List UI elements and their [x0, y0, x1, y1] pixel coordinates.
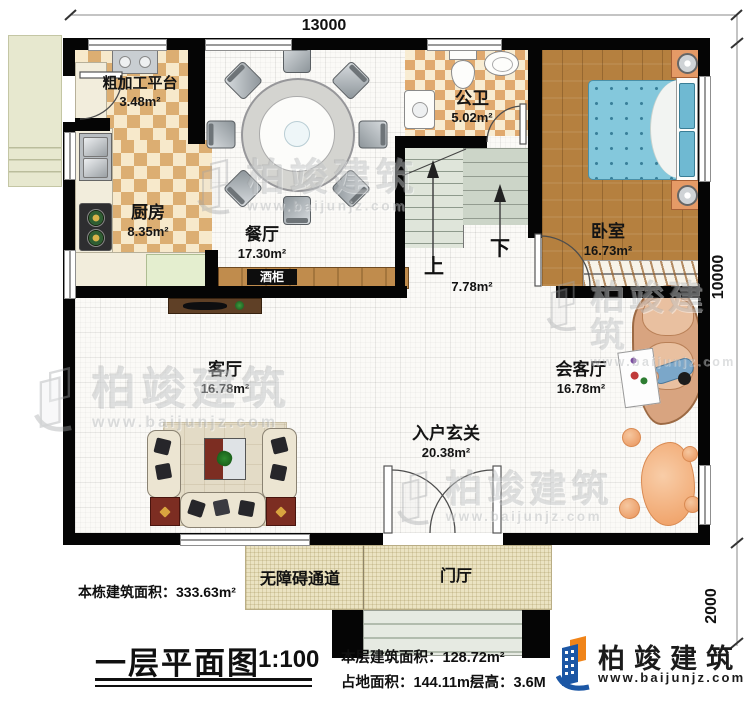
room-label-prep: 粗加工平台 3.48m² — [102, 72, 177, 109]
dining-chair — [283, 196, 311, 225]
window — [64, 132, 76, 180]
wall — [395, 136, 487, 148]
window — [64, 250, 76, 299]
window — [427, 39, 502, 51]
stair-landing — [463, 148, 528, 225]
rug-dot — [682, 446, 698, 462]
lamp — [677, 53, 698, 74]
plan-title: 一层平面图 — [95, 638, 260, 683]
stairs-up-label: 上 — [424, 250, 444, 279]
ramp-label: 无障碍通道 — [260, 565, 340, 589]
floor-plan-canvas: 酒柜 — [0, 0, 750, 701]
dining-chair — [207, 121, 236, 149]
wall — [205, 250, 218, 290]
window — [699, 76, 711, 182]
window — [205, 39, 292, 51]
rug-dot — [619, 498, 640, 519]
rug-dot — [622, 428, 641, 447]
window — [180, 534, 310, 546]
room-label-kitchen: 厨房 8.35m² — [127, 198, 168, 239]
room-label-living: 客厅 16.78m² — [201, 355, 249, 396]
coffee-table — [204, 438, 246, 480]
plan-scale: 1:100 — [258, 646, 319, 674]
pillow — [679, 131, 695, 177]
lamp — [677, 185, 698, 206]
stairs-area: 7.78m² — [451, 279, 492, 294]
brand-url: www.baijunjz.com — [598, 670, 745, 685]
washbasin — [404, 90, 435, 129]
title-underline — [95, 678, 312, 687]
reception-table — [617, 348, 660, 408]
wall — [188, 44, 205, 144]
plant — [215, 449, 234, 468]
room-label-reception: 会客厅 16.78m² — [556, 355, 607, 396]
room-label-foyer: 入户玄关 20.38m² — [412, 419, 480, 460]
dimension-height-main: 10000 — [710, 237, 728, 317]
sofa-left — [147, 430, 181, 498]
wall — [528, 38, 542, 238]
side-table — [266, 497, 296, 526]
bed-headboard — [676, 76, 698, 184]
floor-area: 本层建筑面积：128.72m² — [341, 646, 505, 667]
dining-table — [241, 78, 355, 192]
tv-cabinet — [168, 298, 262, 314]
pillow — [679, 83, 695, 129]
room-label-bedroom: 卧室 16.73m² — [584, 217, 632, 258]
land-area: 占地面积：144.11m² — [341, 671, 475, 692]
wall — [395, 148, 405, 290]
floor-height: 层高：3.6M — [470, 671, 546, 692]
porch-label: 门厅 — [440, 562, 472, 586]
tv — [183, 302, 227, 310]
plant — [235, 301, 244, 310]
kitchen-sink — [79, 133, 112, 181]
window — [699, 465, 711, 525]
stairs-down-label: 下 — [490, 232, 510, 261]
wine-cabinet-label: 酒柜 — [247, 269, 297, 285]
side-table — [150, 497, 180, 526]
room-label-bath: 公卫 5.02m² — [451, 84, 492, 125]
prep-sink — [112, 50, 158, 74]
window — [88, 39, 167, 51]
room-label-dining: 餐厅 17.30m² — [238, 220, 286, 261]
wall — [556, 286, 710, 298]
dimension-height-porch: 2000 — [703, 576, 721, 636]
sofa-right — [262, 428, 297, 500]
stair-treads — [405, 148, 464, 248]
bathroom-sink — [484, 51, 519, 76]
kitchen-stove — [79, 203, 112, 251]
wardrobe — [583, 260, 699, 288]
person-hair — [678, 372, 691, 385]
wall — [63, 286, 407, 298]
porch-pillar — [522, 610, 550, 658]
brand-logo-icon — [556, 634, 594, 694]
dimension-width: 13000 — [302, 17, 347, 35]
building-total-area: 本栋建筑面积：333.63m² — [78, 582, 236, 602]
dining-chair — [359, 121, 388, 149]
sofa-bottom — [180, 492, 266, 528]
exterior-side-platform — [8, 35, 62, 187]
